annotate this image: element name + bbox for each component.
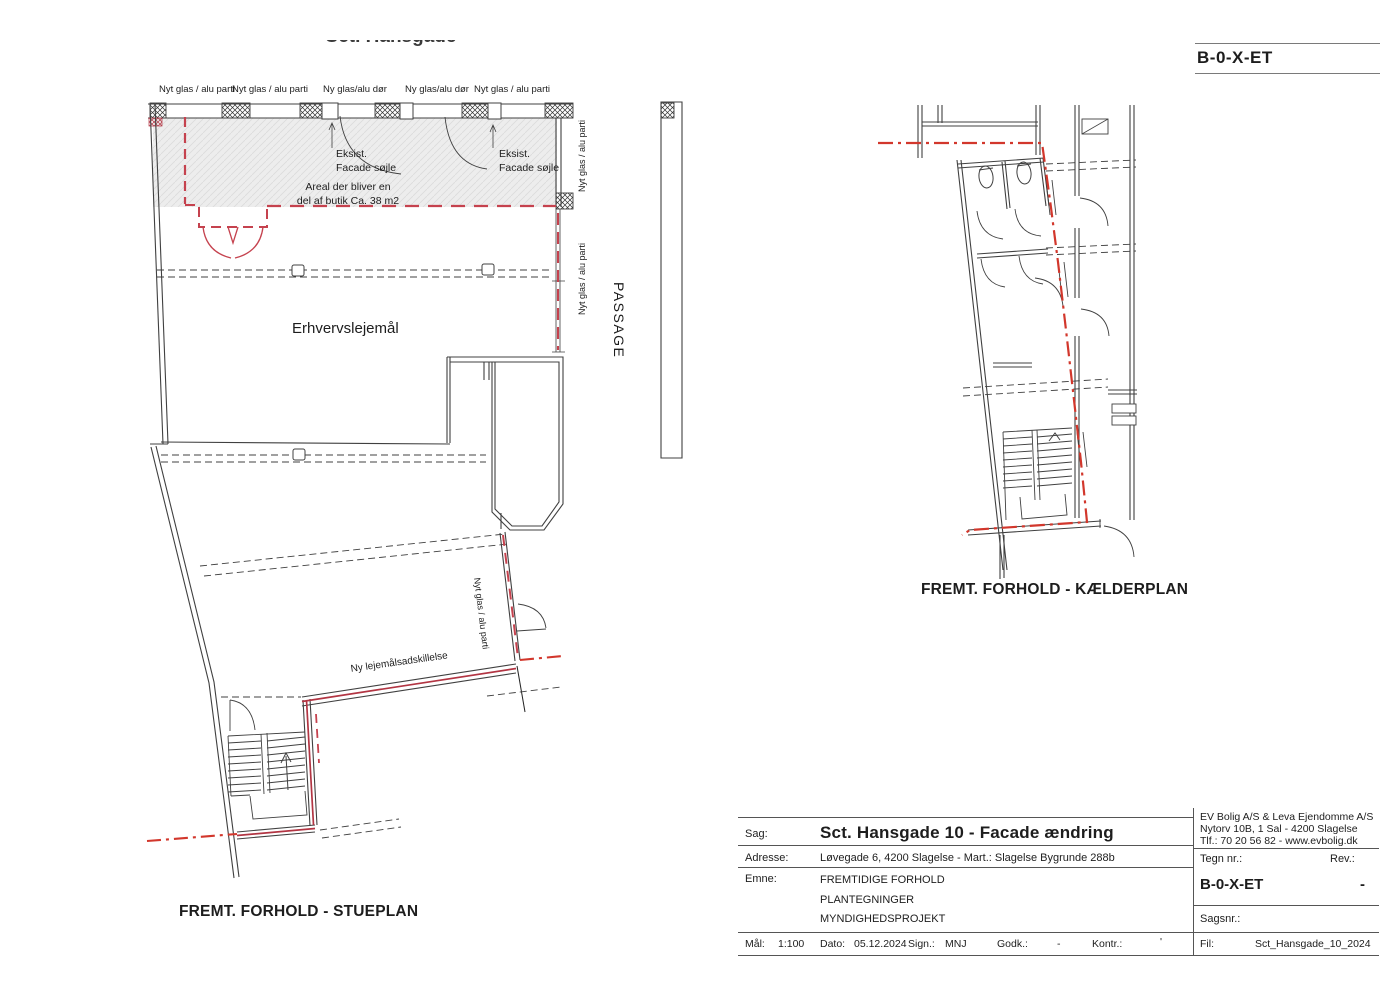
dato-label: Dato: — [820, 938, 845, 950]
bay-window — [447, 357, 563, 530]
door-swing-arc — [517, 604, 546, 631]
hidden-line — [487, 687, 561, 696]
rev-value: - — [1360, 876, 1365, 893]
emne-line: FREMTIDIGE FORHOLD — [820, 874, 945, 886]
rev-label: Rev.: — [1330, 853, 1355, 865]
fil-value: Sct_Hansgade_10_2024 — [1255, 938, 1371, 950]
hidden-line — [963, 379, 1108, 396]
tegn-nr-label: Tegn nr.: — [1200, 853, 1242, 865]
plan-title-kaelderplan: FREMT. FORHOLD - KÆLDERPLAN — [921, 581, 1188, 599]
sheet-code-header: B-0-X-ET — [1195, 43, 1380, 74]
glass-panel — [150, 103, 166, 118]
plan-title-stueplan: FREMT. FORHOLD - STUEPLAN — [179, 903, 418, 921]
staircase — [1003, 428, 1072, 520]
emne-line: MYNDIGHEDSPROJEKT — [820, 913, 945, 925]
passage-wall — [661, 102, 682, 458]
company-line: Nytorv 10B, 1 Sal - 4200 Slagelse — [1200, 823, 1358, 835]
sink-fixture — [1112, 416, 1136, 425]
glass-panel — [222, 103, 250, 118]
sign-label: Sign.: — [908, 938, 935, 950]
existing-column-note: Eksist. Facade søjle — [336, 148, 396, 175]
title-block: EV Bolig A/S & Leva Ejendomme A/S Nytorv… — [738, 808, 1379, 958]
cut-line — [517, 666, 525, 712]
maal-label: Mål: — [745, 938, 765, 950]
column — [293, 449, 305, 460]
door-swing-arc — [981, 256, 1043, 287]
facade-label: Nyt glas / alu parti — [474, 84, 550, 95]
street-label: Sct. Hansgade — [325, 40, 457, 48]
room-label: Erhvervslejemål — [292, 320, 399, 337]
hidden-line — [200, 534, 508, 576]
adresse-label: Adresse: — [745, 852, 788, 864]
sag-value: Sct. Hansgade 10 - Facade ændring — [820, 823, 1114, 843]
drawing-sheet: Sct. Hansgade Nyt glas / alu parti Nyt g… — [0, 0, 1400, 990]
staircase — [228, 700, 307, 819]
glass-panel — [545, 103, 573, 118]
stueplan-red-lines — [147, 117, 563, 841]
maal-value: 1:100 — [778, 938, 804, 950]
company-line: Tlf.: 70 20 56 82 - www.evbolig.dk — [1200, 835, 1358, 847]
sink-fixture — [1112, 404, 1136, 413]
street-label-clipped: Sct. Hansgade — [325, 40, 457, 56]
sagsnr-label: Sagsnr.: — [1200, 913, 1240, 925]
stueplan-linework — [148, 102, 682, 878]
facade-label: Nyt glas / alu parti — [159, 84, 235, 95]
existing-column-note: Eksist. Facade søjle — [499, 148, 559, 175]
kontr-label: Kontr.: — [1092, 938, 1122, 950]
side-glass-label: Nyt glas / alu parti — [577, 120, 587, 192]
demarcation-line — [878, 143, 1087, 535]
demarcation-line — [520, 656, 563, 660]
glass-panel — [462, 103, 488, 118]
kontr-value: ' — [1160, 936, 1162, 948]
hidden-line — [161, 455, 486, 462]
tegn-nr-value: B-0-X-ET — [1200, 876, 1263, 893]
facade-column — [488, 103, 501, 119]
kaelderplan-linework — [918, 105, 1137, 579]
door-swing-arc — [977, 209, 1041, 239]
adresse-value: Løvegade 6, 4200 Slagelse - Mart.: Slage… — [820, 852, 1115, 864]
sign-value: MNJ — [945, 938, 967, 950]
side-glass-label: Nyt glas / alu parti — [577, 243, 587, 315]
facade-column — [322, 103, 338, 119]
hidden-line — [1046, 244, 1136, 255]
red-door-swing — [203, 227, 263, 258]
hidden-line — [320, 819, 401, 838]
facade-column — [400, 103, 413, 119]
dato-value: 05.12.2024 — [854, 938, 907, 950]
door-swing-arc — [1100, 519, 1134, 557]
wall-pier — [556, 193, 573, 209]
column — [292, 265, 304, 276]
demarcation-line — [147, 834, 237, 841]
shop-area-note: Areal der bliver en del af butik Ca. 38 … — [297, 181, 399, 208]
emne-label: Emne: — [745, 873, 777, 885]
hidden-line — [1046, 160, 1136, 171]
column — [482, 264, 494, 275]
facade-label: Ny glas/alu dør — [323, 84, 387, 95]
emne-line: PLANTEGNINGER — [820, 894, 914, 906]
fil-label: Fil: — [1200, 938, 1214, 950]
sag-label: Sag: — [745, 828, 768, 840]
door-swing-arc — [1080, 198, 1109, 336]
glass-panel — [375, 103, 400, 118]
facade-label: Ny glas/alu dør — [405, 84, 469, 95]
godk-label: Godk.: — [997, 938, 1028, 950]
door-swing-arc — [1035, 278, 1063, 306]
godk-value: - — [1057, 938, 1061, 950]
facade-label: Nyt glas / alu parti — [232, 84, 308, 95]
passage-label: PASSAGE — [611, 282, 627, 358]
company-line: EV Bolig A/S & Leva Ejendomme A/S — [1200, 811, 1373, 823]
